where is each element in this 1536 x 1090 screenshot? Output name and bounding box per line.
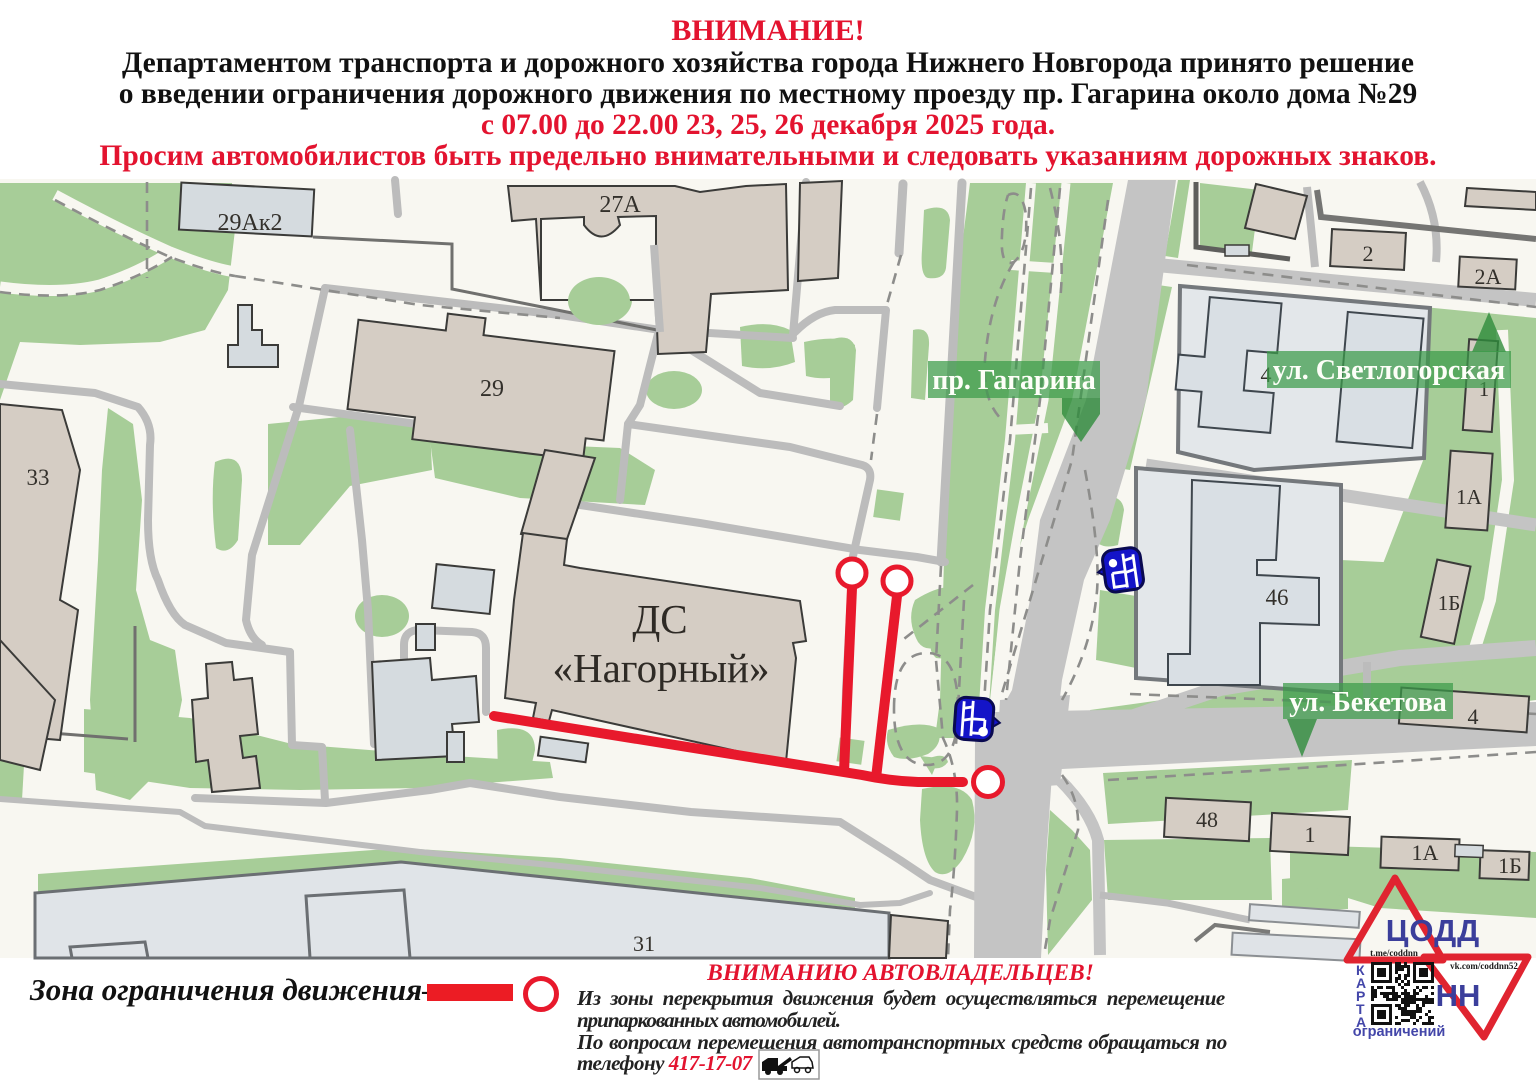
- svg-text:vk.com/coddnn52: vk.com/coddnn52: [1450, 961, 1518, 971]
- svg-text:НН: НН: [1436, 978, 1481, 1013]
- svg-text:ограничений: ограничений: [1353, 1024, 1446, 1040]
- svg-text:t.me/coddnn: t.me/coddnn: [1370, 948, 1418, 958]
- svg-text:ЦОДД: ЦОДД: [1386, 913, 1481, 948]
